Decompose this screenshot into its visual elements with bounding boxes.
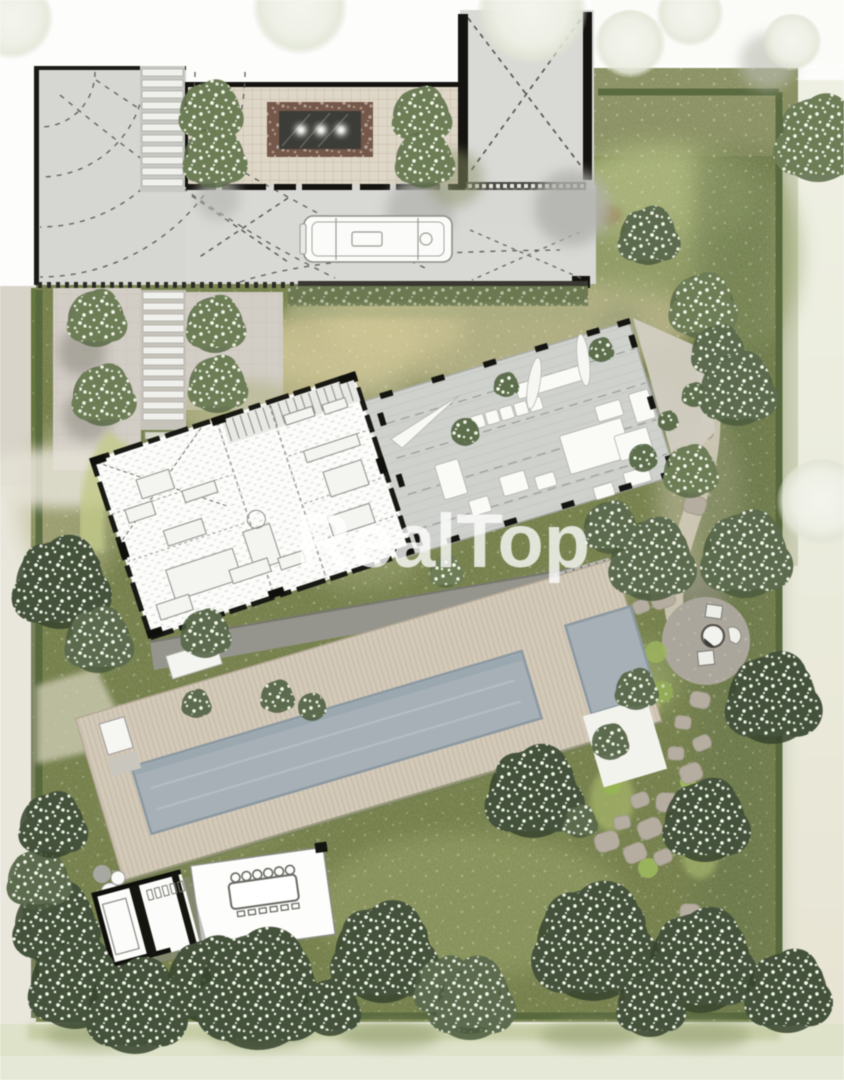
svg-text:RealTop: RealTop — [296, 499, 590, 584]
